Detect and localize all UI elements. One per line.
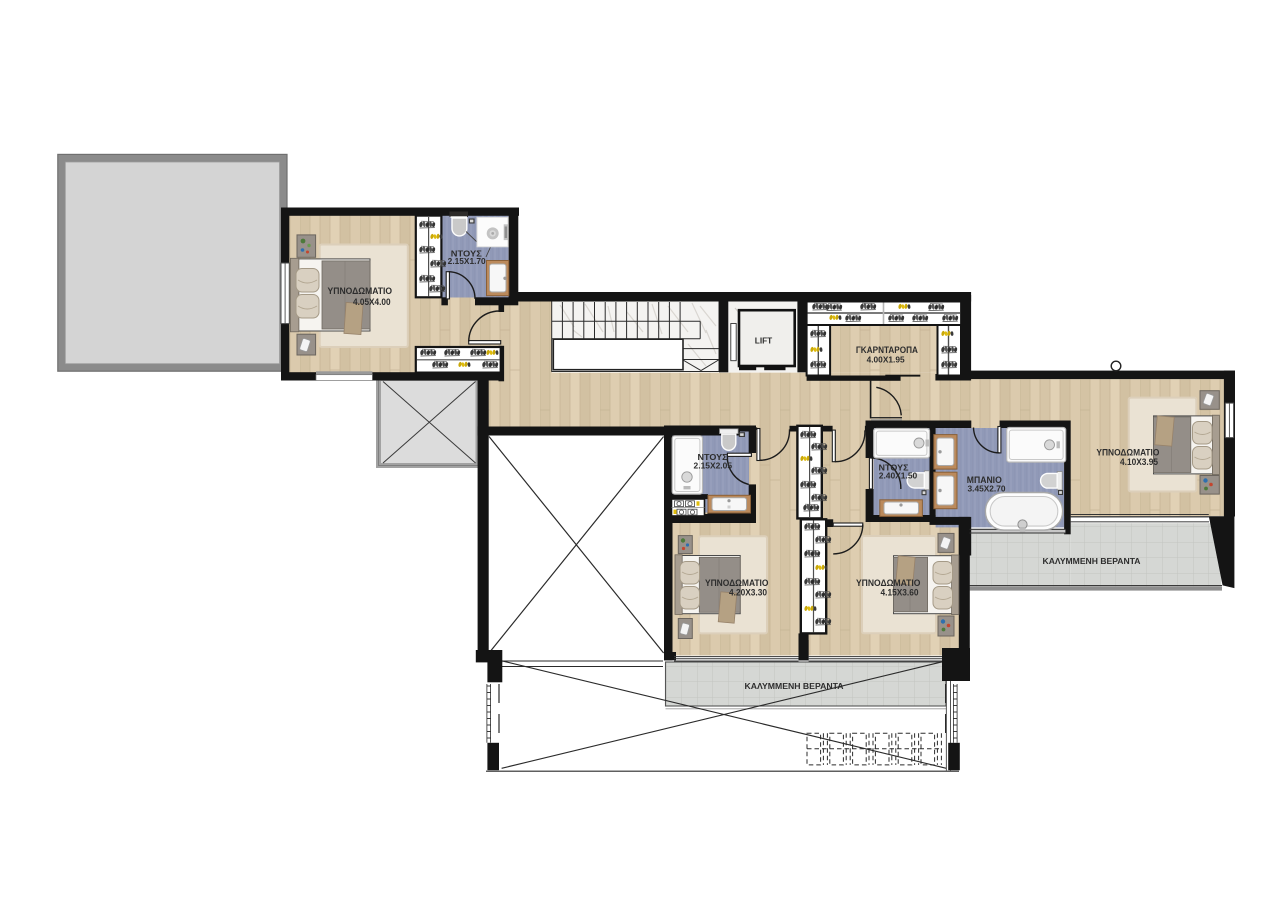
svg-text:2.15X2.05: 2.15X2.05 xyxy=(694,461,733,470)
svg-text:ΓΚΑΡΝΤΑΡΟΠΑ: ΓΚΑΡΝΤΑΡΟΠΑ xyxy=(856,344,918,355)
svg-text:4.00X1.95: 4.00X1.95 xyxy=(867,354,905,364)
svg-text:4.10X3.95: 4.10X3.95 xyxy=(1120,457,1158,467)
svg-text:ΥΠΝΟΔΩΜΑΤΙΟ: ΥΠΝΟΔΩΜΑΤΙΟ xyxy=(328,286,393,297)
svg-text:ΚΑΛΥΜΜΕΝΗ ΒΕΡΑΝΤΑ: ΚΑΛΥΜΜΕΝΗ ΒΕΡΑΝΤΑ xyxy=(1043,556,1141,566)
svg-text:4.15X3.60: 4.15X3.60 xyxy=(881,587,919,597)
svg-text:2.15X1.70: 2.15X1.70 xyxy=(448,257,486,266)
svg-text:3.45X2.70: 3.45X2.70 xyxy=(968,483,1006,493)
svg-text:2.40X1.50: 2.40X1.50 xyxy=(879,471,918,480)
svg-text:LIFT: LIFT xyxy=(755,336,773,346)
svg-text:4.20X3.30: 4.20X3.30 xyxy=(729,587,767,597)
svg-text:4.05X4.00: 4.05X4.00 xyxy=(353,297,391,307)
